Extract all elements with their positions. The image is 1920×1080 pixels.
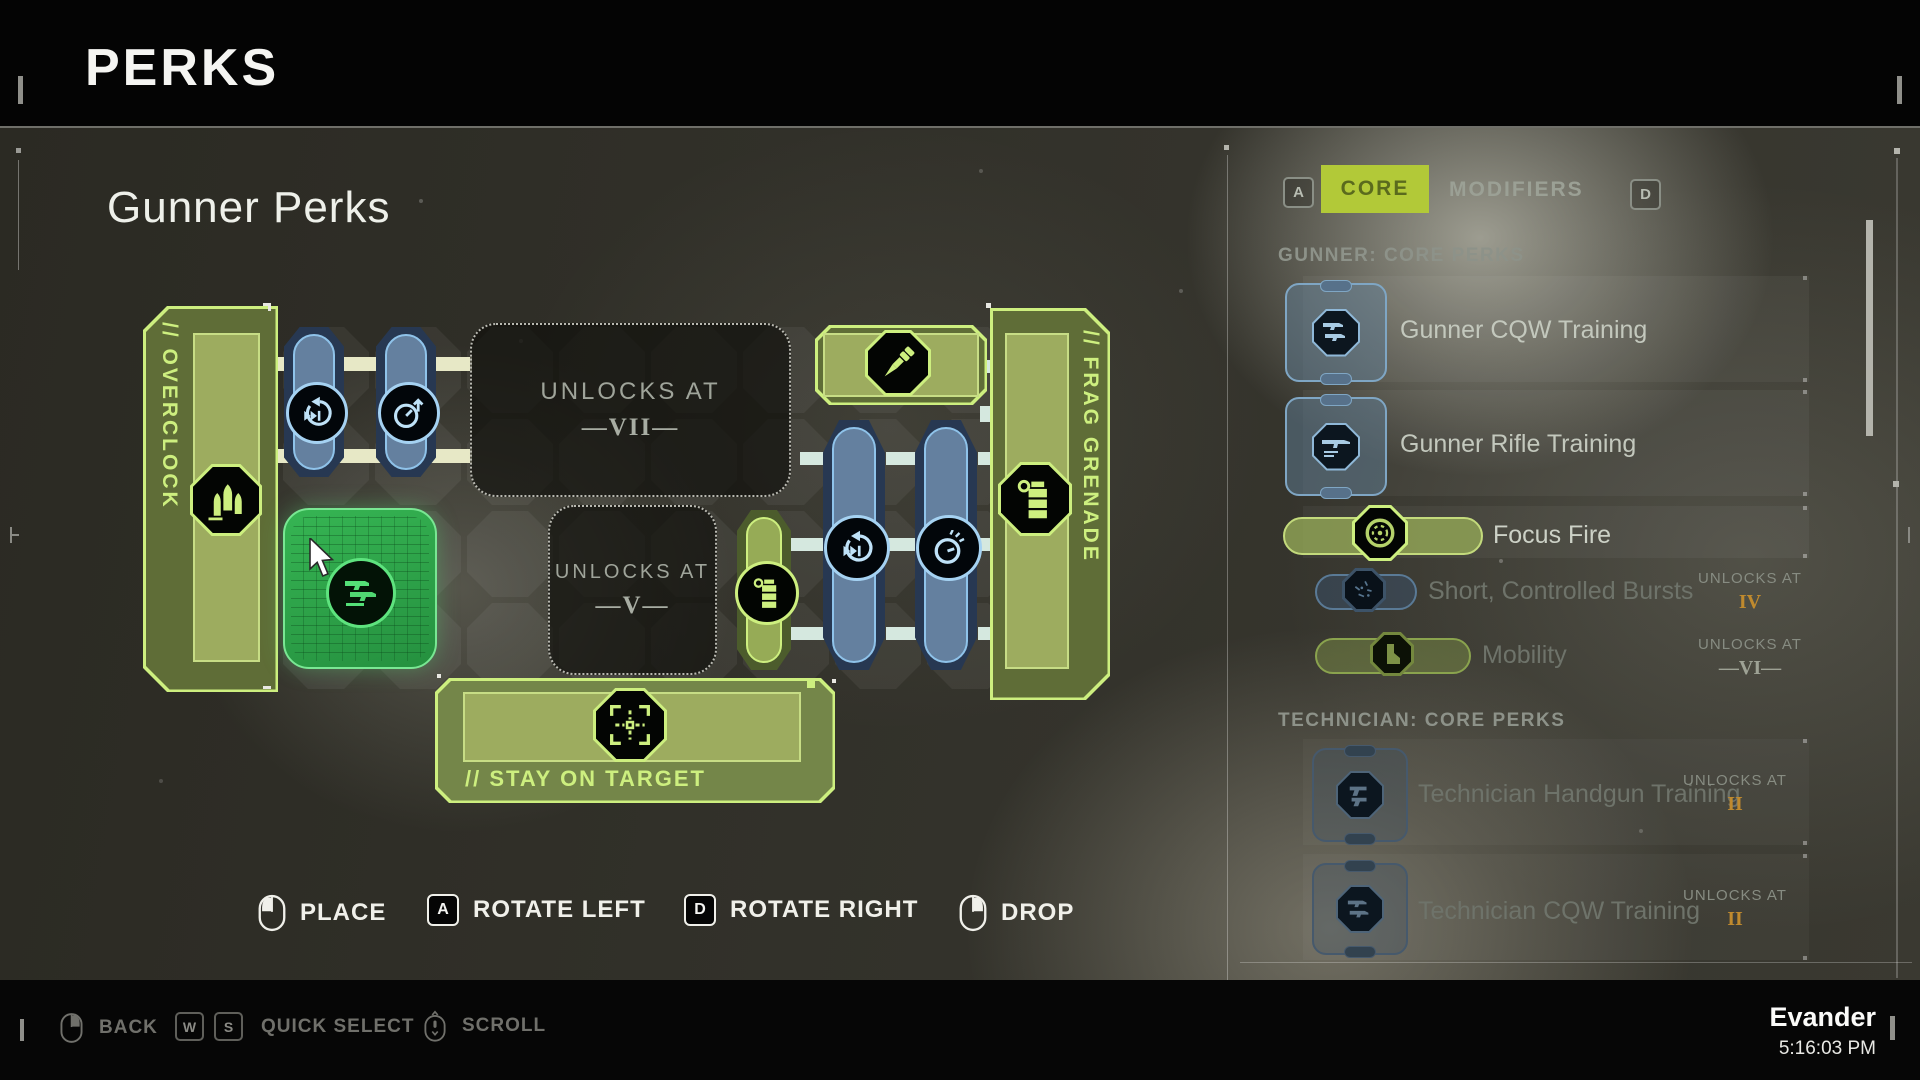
mouse-right-icon (959, 894, 987, 932)
key-a-badge: A (427, 894, 459, 926)
guns-stack-icon (326, 558, 396, 628)
top-module-socket[interactable] (865, 330, 931, 396)
section-title-gunner: GUNNER: CORE PERKS (1278, 245, 1525, 267)
focus-fire-socket (1352, 505, 1408, 561)
perk-label[interactable]: Gunner CQW Training (1400, 316, 1647, 345)
page-title: PERKS (85, 38, 279, 98)
perk-label[interactable]: Mobility (1482, 641, 1567, 670)
unlock-box-vii-level: —VII— (582, 414, 680, 442)
hex-cell (467, 603, 553, 689)
bottom-bar: BACK W S QUICK SELECT SCROLL (0, 980, 1920, 1080)
panel-scrollbar-thumb[interactable] (1866, 220, 1873, 436)
corner-tick (268, 303, 271, 311)
corner-tick (986, 303, 991, 308)
perk-label[interactable]: Technician CQW Training (1418, 897, 1700, 926)
unlock-box-v-label: UNLOCKS AT (555, 561, 710, 584)
unlock-level: II (1680, 793, 1790, 816)
mouse-left-icon (258, 894, 286, 932)
hex-cell (467, 511, 553, 597)
perk-tile-tech-cqw[interactable] (1312, 863, 1408, 955)
dart-icon (878, 343, 918, 383)
hint-rotate-right-label: ROTATE RIGHT (730, 896, 918, 924)
tab-key-a-badge: A (1283, 177, 1314, 208)
hint-drop-label: DROP (1001, 899, 1074, 927)
unlocks-at-label: UNLOCKS AT (1680, 887, 1790, 904)
reload-cycle-icon (824, 515, 890, 581)
tab-modifiers[interactable]: MODIFIERS (1449, 178, 1584, 202)
timer-up-icon (378, 382, 440, 444)
frag-grenade-label: // FRAG GRENADE (1078, 330, 1102, 563)
mouse-right-icon (60, 1012, 83, 1044)
corner-tick-green (807, 680, 815, 688)
hint-rotate-left-label: ROTATE LEFT (473, 896, 646, 924)
perk-label[interactable]: Gunner Rifle Training (1400, 430, 1636, 459)
hint-back-label: BACK (99, 1017, 158, 1039)
reload-cycle-icon (286, 382, 348, 444)
tab-core[interactable]: CORE (1321, 165, 1429, 213)
connector-bar (800, 452, 824, 465)
hint-scroll: SCROLL (424, 1008, 546, 1044)
perk-label[interactable]: Focus Fire (1493, 521, 1611, 550)
unlock-level: IV (1690, 591, 1810, 614)
panel-divider-dot (1224, 145, 1229, 150)
hint-drop: DROP (959, 894, 1074, 932)
unlock-box-v-level: —V— (595, 592, 669, 620)
player-name: Evander (1769, 1002, 1876, 1033)
connector-bar (978, 627, 992, 640)
cqw-guns-icon (1314, 311, 1358, 355)
key-w-badge: W (175, 1012, 204, 1041)
cqw-guns-icon (1338, 887, 1382, 931)
perk-tile-tech-handgun[interactable] (1312, 748, 1408, 842)
burst-icon (1351, 577, 1377, 603)
ammo-drum-icon (1363, 516, 1397, 550)
right-edge-tick (1908, 527, 1910, 543)
unlock-level: —VI— (1690, 657, 1810, 680)
header-bar: PERKS (0, 0, 1920, 128)
unlock-box-vii-label: UNLOCKS AT (540, 378, 720, 406)
board-heading: Gunner Perks (107, 183, 390, 233)
mouse-scroll-icon (424, 1008, 446, 1044)
stay-on-target-label: // STAY ON TARGET (465, 766, 706, 792)
hint-quick-select-label: QUICK SELECT (261, 1016, 414, 1038)
hint-place-label: PLACE (300, 899, 386, 927)
panel-edge-dot2 (1893, 481, 1899, 487)
rifle-icon (1314, 425, 1358, 469)
unlock-box-v: UNLOCKS AT —V— (548, 505, 717, 675)
hint-rotate-right: D ROTATE RIGHT (684, 894, 918, 926)
perk-label[interactable]: Short, Controlled Bursts (1428, 577, 1693, 606)
panel-divider (1227, 155, 1228, 983)
unlock-level: II (1680, 908, 1790, 931)
section-title-technician: TECHNICIAN: CORE PERKS (1278, 710, 1565, 732)
header-right-tick (1897, 76, 1902, 104)
connector-bar (886, 627, 916, 640)
unlock-box-vii: UNLOCKS AT —VII— (470, 323, 791, 497)
background-specks (0, 140, 2, 142)
hint-place: PLACE (258, 894, 386, 932)
grenade-icon (1013, 477, 1057, 521)
overclock-label: // OVERCLOCK (157, 322, 181, 510)
perk-tile-gunner-cqw[interactable] (1285, 283, 1387, 382)
panel-edge-line (1896, 158, 1898, 978)
header-left-tick (18, 76, 23, 104)
bottom-right-tick (1890, 1016, 1895, 1040)
perks-screen: PERKS Gunner Perks UNLOCKS AT —VII— UNLO… (0, 0, 1920, 1080)
left-edge-dot (16, 148, 21, 153)
key-d-badge: D (684, 894, 716, 926)
hint-back: BACK (60, 1012, 158, 1044)
tab-key-d-badge: D (1630, 179, 1661, 210)
crosshair-icon (608, 703, 652, 747)
handgun-icon (1338, 773, 1382, 817)
hint-scroll-label: SCROLL (462, 1015, 546, 1037)
connector-bar (978, 452, 992, 465)
panel-bottom-line (1240, 962, 1912, 963)
grenade-icon (735, 561, 799, 625)
unlocks-at-label: UNLOCKS AT (1680, 772, 1790, 789)
connector-bar (788, 538, 826, 551)
corner-tick (437, 674, 441, 678)
hint-quick-select: W S QUICK SELECT (175, 1012, 414, 1041)
mouse-cursor (308, 538, 336, 578)
timer-lines-icon (916, 515, 982, 581)
bottom-left-tick (20, 1019, 24, 1041)
unlocks-at-label: UNLOCKS AT (1690, 570, 1810, 587)
unlocks-at-label: UNLOCKS AT (1690, 636, 1810, 653)
left-edge-line (18, 160, 19, 270)
hint-rotate-left: A ROTATE LEFT (427, 894, 646, 926)
corner-tick (263, 686, 271, 689)
key-s-badge: S (214, 1012, 243, 1041)
connector-bar (886, 452, 916, 465)
panel-edge-dot (1894, 148, 1900, 154)
connector-bar (886, 538, 916, 551)
boot-icon (1380, 642, 1404, 666)
left-edge-tick2 (10, 534, 19, 536)
clock-time: 5:16:03 PM (1779, 1038, 1876, 1060)
corner-tick (832, 679, 836, 683)
perk-tile-gunner-rifle[interactable] (1285, 397, 1387, 496)
connector-bar (788, 627, 826, 640)
bullets-icon (205, 479, 247, 521)
